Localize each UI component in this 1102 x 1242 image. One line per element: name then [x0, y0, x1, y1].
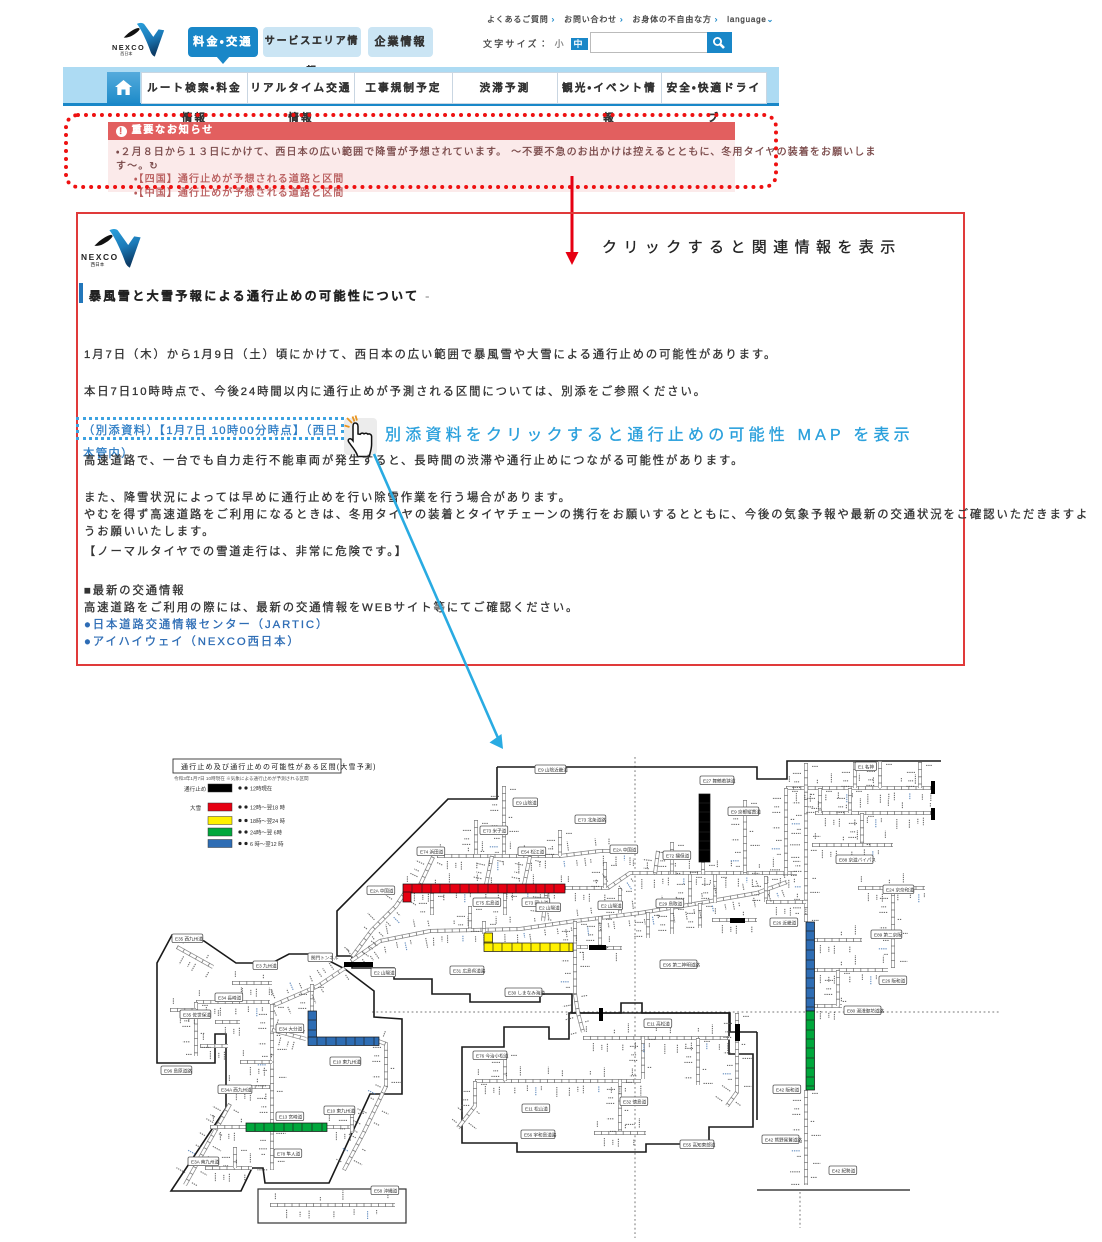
svg-text:E9 山陰近畿道: E9 山陰近畿道 — [538, 766, 568, 773]
svg-text:E9 山陰道: E9 山陰道 — [516, 799, 537, 806]
svg-text:24時～翌 6時: 24時～翌 6時 — [250, 830, 283, 837]
svg-text:E26 近畿道: E26 近畿道 — [773, 919, 797, 926]
svg-text:E74 浜田道: E74 浜田道 — [420, 848, 444, 855]
svg-text:E3A 南九州道: E3A 南九州道 — [191, 1158, 219, 1165]
svg-text:E42 熊野尾鷲道路: E42 熊野尾鷲道路 — [765, 1136, 802, 1143]
svg-text:E34 大分道: E34 大分道 — [279, 1025, 303, 1032]
svg-text:E72 播但道: E72 播但道 — [666, 852, 690, 859]
svg-text:E95 第二神明道路: E95 第二神明道路 — [663, 961, 700, 968]
svg-text:E2 山陽道: E2 山陽道 — [374, 969, 395, 976]
svg-text:6 時～翌12 時: 6 時～翌12 時 — [250, 841, 284, 848]
svg-text:E34A 西九州道: E34A 西九州道 — [221, 1086, 252, 1093]
svg-text:E42 紀勢道: E42 紀勢道 — [832, 1167, 856, 1174]
svg-text:E31 広島呉道路: E31 広島呉道路 — [453, 967, 486, 974]
svg-text:E2A 中国道: E2A 中国道 — [370, 887, 394, 894]
svg-text:E11 松山道: E11 松山道 — [525, 1105, 548, 1112]
svg-text:E78 隼人道: E78 隼人道 — [277, 1150, 301, 1157]
svg-text:大雪: 大雪 — [190, 804, 202, 812]
svg-text:E2A 中国道: E2A 中国道 — [613, 846, 637, 853]
svg-text:通行止め: 通行止め — [184, 785, 207, 793]
svg-text:通行止め及び通行止めの可能性がある区間(大雪予測): 通行止め及び通行止めの可能性がある区間(大雪予測) — [181, 762, 377, 771]
svg-text:12時現在: 12時現在 — [250, 785, 273, 793]
svg-text:E58 沖縄道: E58 沖縄道 — [374, 1187, 398, 1194]
svg-text:E30 しまなみ海道: E30 しまなみ海道 — [508, 989, 545, 996]
svg-text:E27 舞鶴若狭道: E27 舞鶴若狭道 — [703, 777, 736, 784]
svg-text:E35 佐世保道: E35 佐世保道 — [183, 1011, 211, 1018]
svg-text:E2 山陽道: E2 山陽道 — [601, 902, 622, 909]
svg-text:E96 島原道路: E96 島原道路 — [164, 1067, 192, 1074]
svg-text:E35 西九州道: E35 西九州道 — [175, 935, 203, 942]
svg-text:E29 鳥取道: E29 鳥取道 — [659, 900, 683, 907]
svg-text:E34 長崎道: E34 長崎道 — [218, 994, 242, 1001]
svg-text:18時～翌24 時: 18時～翌24 時 — [250, 818, 286, 825]
svg-text:E3 九州道: E3 九州道 — [256, 962, 277, 969]
svg-text:E55 高知東部道: E55 高知東部道 — [683, 1141, 716, 1148]
svg-text:E1 名神: E1 名神 — [858, 763, 874, 770]
svg-text:E10 東九州道: E10 東九州道 — [333, 1058, 361, 1065]
svg-text:E73 北条道路: E73 北条道路 — [578, 816, 606, 823]
svg-text:E24 京奈和道: E24 京奈和道 — [886, 886, 914, 893]
svg-text:E26 阪和道: E26 阪和道 — [882, 977, 906, 984]
svg-text:E76 今治小松道: E76 今治小松道 — [476, 1052, 509, 1059]
svg-text:E73 米子道: E73 米子道 — [483, 827, 507, 834]
svg-text:E42 阪和道: E42 阪和道 — [776, 1086, 800, 1093]
svg-text:E9 京都縦貫道: E9 京都縦貫道 — [731, 808, 761, 815]
svg-text:E13 宮崎道: E13 宮崎道 — [279, 1113, 303, 1120]
svg-text:E80 湯浅御坊道路: E80 湯浅御坊道路 — [847, 1007, 884, 1014]
svg-text:E89 第二京阪: E89 第二京阪 — [874, 931, 902, 938]
svg-text:E56 宇和島道路: E56 宇和島道路 — [524, 1131, 557, 1138]
svg-text:12時～翌18 時: 12時～翌18 時 — [250, 805, 286, 812]
svg-text:E2 山陽道: E2 山陽道 — [539, 904, 560, 911]
svg-text:E88 京滋バイパス: E88 京滋バイパス — [839, 856, 876, 863]
svg-text:E54 松江道: E54 松江道 — [521, 848, 545, 855]
svg-text:E32 徳島道: E32 徳島道 — [623, 1098, 647, 1105]
svg-text:E10 東九州道: E10 東九州道 — [327, 1107, 355, 1114]
svg-text:令和3年1月7日 10時現在 ※気象による通行止めが予測され: 令和3年1月7日 10時現在 ※気象による通行止めが予測される区間 — [174, 775, 309, 782]
svg-text:E11 高松道: E11 高松道 — [647, 1020, 670, 1027]
svg-text:E75 広島道: E75 広島道 — [476, 899, 500, 906]
